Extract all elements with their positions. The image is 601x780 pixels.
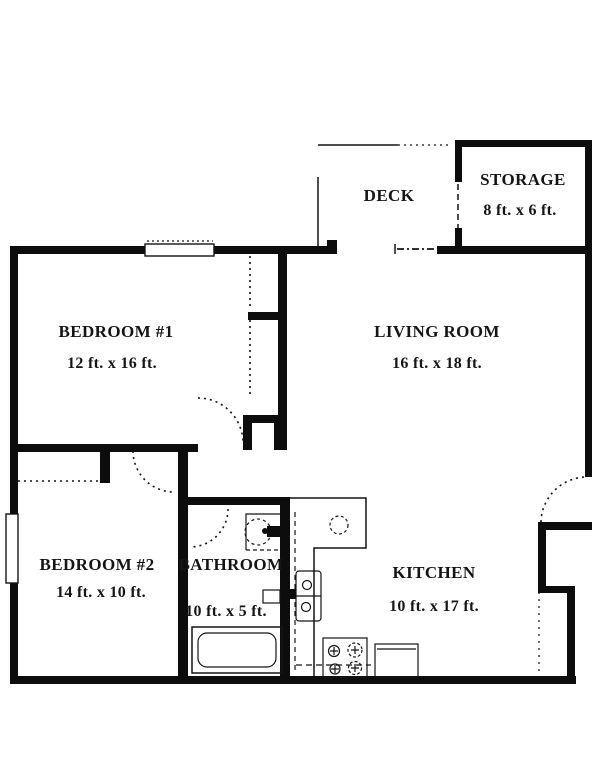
floor-plan: DECK STORAGE 8 ft. x 6 ft. BEDROOM #1 12… [0, 0, 601, 780]
entry-notch-vertical [538, 522, 546, 593]
bedroom2-window [6, 514, 18, 583]
walls [10, 140, 592, 684]
closet-foot-right [274, 422, 287, 450]
storage-wall-top [455, 140, 592, 147]
kitchen-sink-icon [330, 516, 348, 534]
appliance-dial-top [303, 581, 312, 590]
wall-left-upper [10, 246, 18, 516]
bathroom-dims: 10 ft. x 5 ft. [185, 603, 267, 620]
bathtub-icon [192, 627, 282, 673]
living-label: LIVING ROOM [374, 322, 500, 341]
bathroom-shelf [263, 590, 280, 603]
closet-foot-left [243, 415, 252, 450]
wall-right-upper [585, 140, 592, 477]
kitchen-dims: 10 ft. x 17 ft. [389, 598, 479, 615]
bedroom1-window [145, 244, 214, 256]
floor-plan-drawing: DECK STORAGE 8 ft. x 6 ft. BEDROOM #1 12… [0, 0, 601, 780]
storage-wall-left-b [455, 228, 462, 254]
wall-bottom [10, 676, 576, 684]
bathroom-fixtures [192, 514, 282, 673]
bathroom-top-wall [178, 497, 290, 505]
deck-label: DECK [364, 186, 415, 205]
entry-door-arc [541, 477, 587, 522]
faucet-icon [267, 526, 280, 537]
bedroom2-door-arc [133, 451, 174, 492]
closet-divider [248, 312, 278, 320]
bathtub-basin [198, 633, 276, 667]
bedroom1-label: BEDROOM #1 [59, 322, 174, 341]
faucet-knob-icon [262, 528, 268, 534]
bedroom2-label: BEDROOM #2 [40, 555, 155, 574]
kitchen-label: KITCHEN [392, 563, 475, 582]
appliance-handle [288, 589, 296, 599]
storage-label: STORAGE [480, 170, 566, 189]
wall-top-step-tick [327, 240, 337, 246]
bathroom-label: BATHROOM [179, 555, 284, 574]
storage-wall-left-a [455, 140, 462, 182]
burner-cross-marks [330, 646, 359, 673]
range-icon [323, 638, 367, 677]
room-labels: DECK STORAGE 8 ft. x 6 ft. BEDROOM #1 12… [40, 170, 566, 620]
living-dims: 16 ft. x 18 ft. [392, 355, 482, 372]
kitchen-right-wall [567, 586, 575, 684]
bedroom2-dims: 14 ft. x 10 ft. [56, 584, 146, 601]
bathroom-door-arc [190, 509, 228, 547]
appliance-dial-bottom [302, 603, 311, 612]
kitchen-fixtures [288, 498, 539, 677]
bedroom1-door-arc [198, 398, 243, 443]
wall-left-lower [10, 582, 18, 684]
hall-stub-wall [100, 444, 110, 483]
storage-dims: 8 ft. x 6 ft. [483, 202, 556, 219]
bedroom1-dims: 12 ft. x 16 ft. [67, 355, 157, 372]
divider-bedroom1-living [278, 250, 287, 450]
entry-notch-top [538, 522, 592, 530]
